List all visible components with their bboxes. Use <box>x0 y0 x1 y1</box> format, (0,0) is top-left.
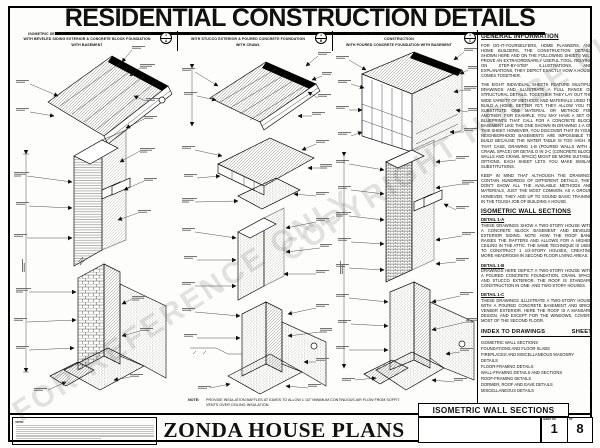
note-label: NOTE: <box>188 398 206 408</box>
detail-1a-text: THESE DRAWINGS SHOW A TWO-STORY HOUSE WI… <box>481 223 592 259</box>
titleblock-sheet-title: ISOMETRIC WALL SECTIONS <box>418 403 569 417</box>
fine-print-lines <box>16 425 154 438</box>
general-information-heading: GENERAL INFORMATION <box>481 33 592 40</box>
index-row: FIREPLACES AND MISCELLANEOUS MASONRY DET… <box>481 352 592 362</box>
detail-marker-1a: 1 A <box>160 32 172 44</box>
index-row: MISCELLANEOUS DETAILS 8 <box>481 388 592 393</box>
index-row: ROOF-FRAMING DETAILS 6 <box>481 376 592 381</box>
index-row: FLOOR-FRAMING DETAILS 4 <box>481 364 592 369</box>
note-text: PROVIDE INSULATION BAFFLES AT EAVES TO A… <box>206 398 400 408</box>
fine-print-last-line <box>16 438 102 440</box>
column3-heading-line1: ISOMETRIC SECTION OF TYPICAL BRICK VENEE… <box>336 32 462 43</box>
detail-1b-label: DETAIL 1-B <box>481 263 592 268</box>
of-value: 8 <box>568 421 592 442</box>
isometric-wall-sections-heading: ISOMETRIC WALL SECTIONS <box>481 208 592 215</box>
index-row: DORMER, ROOF AND EAVE DETAILS 7 <box>481 382 592 387</box>
detail-marker-1b: 1 B <box>315 32 327 44</box>
index-row: FOUNDATIONS AND FLOOR SLABS 2 <box>481 346 592 351</box>
header-divider-1 <box>177 31 178 51</box>
titleblock-of-cell: OF 8 <box>567 417 593 443</box>
index-row: WALL-FRAMING DETAILS AND SECTIONS 5 <box>481 370 592 375</box>
brand-title: ZONDA HOUSE PLANS <box>150 418 418 443</box>
general-information-paragraph-3: KEEP IN MIND THAT ALTHOUGH THE DRAWINGS … <box>481 173 592 204</box>
index-row: ISOMETRIC WALL SECTIONS 1 <box>481 340 592 345</box>
info-column-divider <box>477 30 478 403</box>
detail-1a-label: DETAIL 1-A <box>481 217 592 222</box>
detail-1c-text: THESE DRAWINGS ILLUSTRATE A TWO-STORY HO… <box>481 298 592 324</box>
detail-1c-label: DETAIL 1-C <box>481 292 592 297</box>
page-title: RESIDENTIAL CONSTRUCTION DETAILS <box>0 6 600 35</box>
drawing-sheet: FOR REFERENCE ONLY COPYRIGHT HOUSE PLANS… <box>0 0 600 448</box>
detail-marker-1c: 1 C <box>464 32 476 44</box>
titleblock-main-box <box>418 417 541 443</box>
insulation-baffle-note: NOTE: PROVIDE INSULATION BAFFLES AT EAVE… <box>188 398 400 408</box>
detail-1b-text: DRAWINGS HERE DEPICT A TWO-STORY HOUSE W… <box>481 268 592 288</box>
index-to-drawings-header: INDEX TO DRAWINGS SHEET <box>481 329 592 338</box>
sheet-no-value: 1 <box>542 421 567 442</box>
index-heading: INDEX TO DRAWINGS <box>481 329 545 335</box>
header-divider-2 <box>332 31 333 51</box>
titleblock-sheet-number-cell: SHEET NO 1 <box>541 417 568 443</box>
index-sheet-column-label: SHEET <box>572 329 592 335</box>
